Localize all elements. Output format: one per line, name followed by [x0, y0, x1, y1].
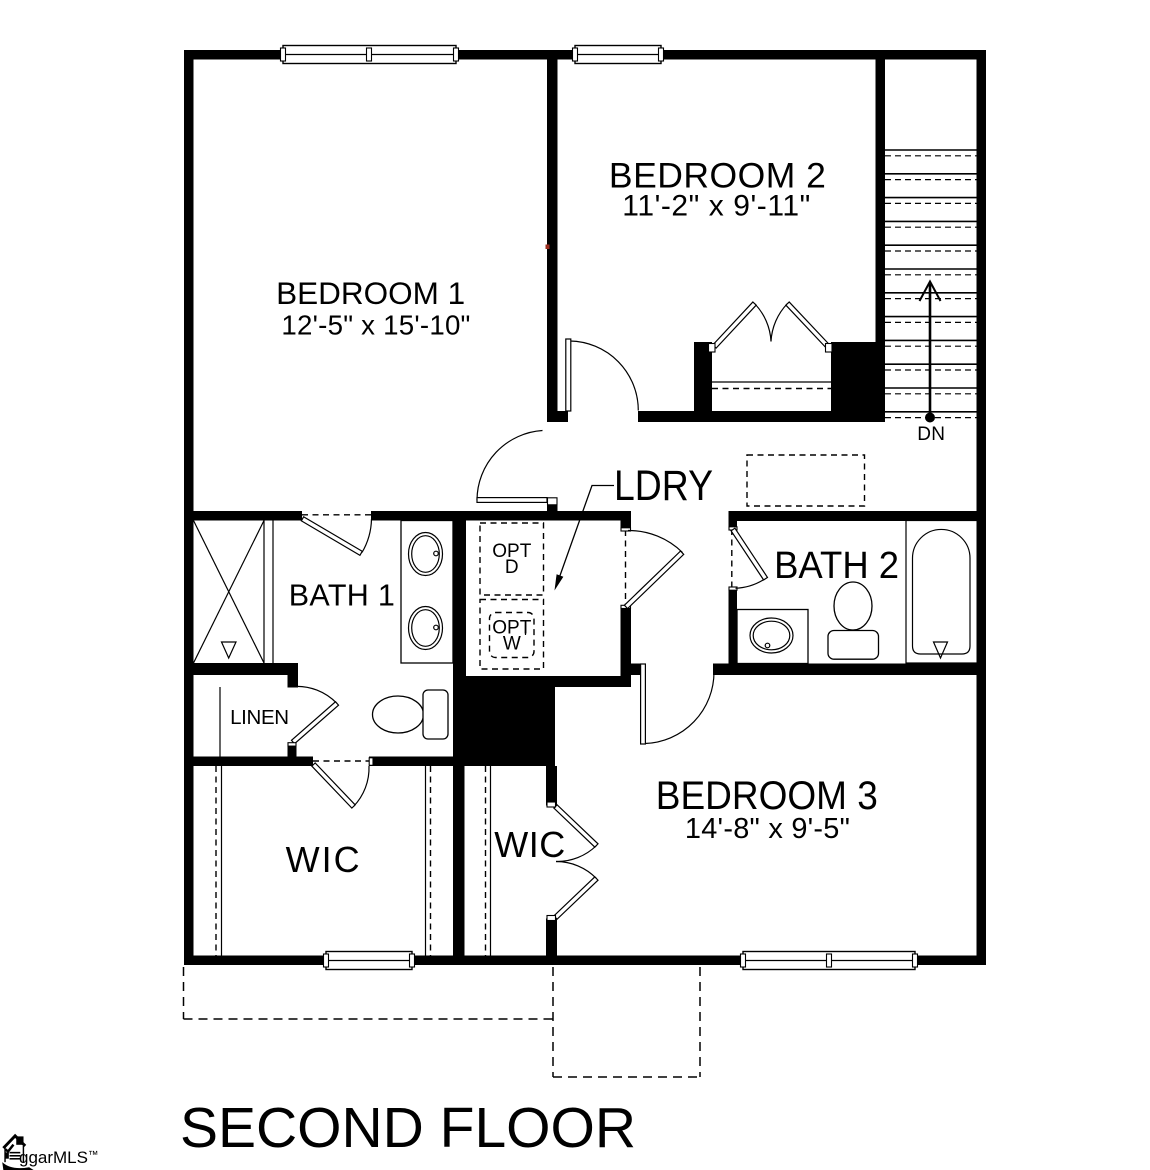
- svg-text:LINEN: LINEN: [230, 706, 289, 729]
- svg-text:BEDROOM 3: BEDROOM 3: [656, 774, 878, 818]
- svg-text:ggarMLS™: ggarMLS™: [19, 1148, 98, 1167]
- svg-text:D: D: [505, 557, 519, 578]
- svg-text:W: W: [503, 634, 521, 655]
- svg-text:WIC: WIC: [494, 824, 565, 865]
- svg-text:BATH 1: BATH 1: [289, 579, 395, 613]
- svg-text:12'-5" x 15'-10": 12'-5" x 15'-10": [281, 310, 470, 341]
- svg-text:SECOND FLOOR: SECOND FLOOR: [180, 1096, 636, 1160]
- svg-text:BEDROOM 1: BEDROOM 1: [276, 275, 465, 311]
- svg-text:DN: DN: [917, 424, 945, 445]
- svg-text:WIC: WIC: [286, 839, 360, 880]
- svg-text:11'-2" x 9'-11": 11'-2" x 9'-11": [622, 190, 810, 223]
- svg-text:14'-8" x 9'-5": 14'-8" x 9'-5": [685, 813, 850, 845]
- svg-text:BATH 2: BATH 2: [774, 545, 899, 587]
- svg-text:LDRY: LDRY: [614, 463, 713, 510]
